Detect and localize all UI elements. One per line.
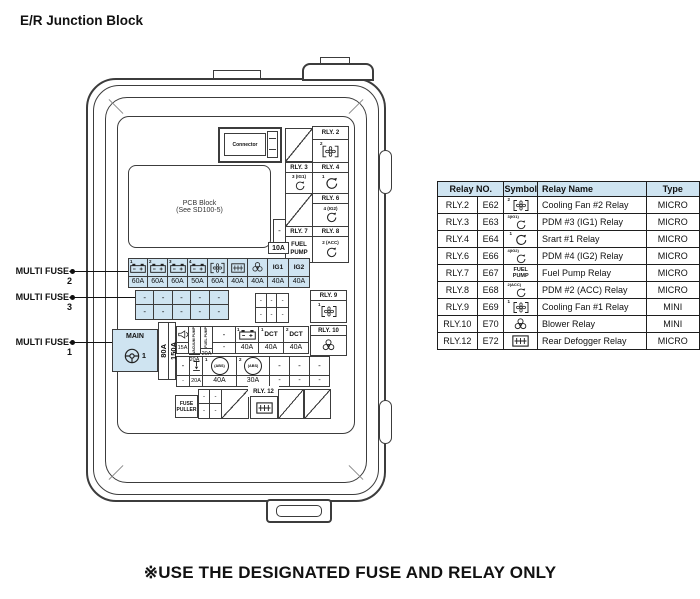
fuse-cell: - - <box>310 356 330 387</box>
relay-slot-blank <box>304 389 331 419</box>
pcb-label-line2: (See SD100-5) <box>176 207 223 214</box>
battery-icon <box>239 329 256 340</box>
small-fuse-row-1: 15A VACUUM PUMP 20A FUEL PUMP 20A - - 1 … <box>176 326 309 354</box>
tow-hitch-icon <box>192 360 201 372</box>
table-row: RLY.3E63 3(IG1) PDM #3 (IG1) RelayMICRO <box>438 214 700 231</box>
vacuum-pump-label: VACUUM PUMP <box>192 327 196 354</box>
leader-line <box>74 297 135 298</box>
fuse-cell: IG1 40A <box>268 258 289 288</box>
blower-icon <box>513 317 528 332</box>
connector-label: Connector <box>233 142 258 148</box>
case-side-bump <box>379 400 392 444</box>
table-header-row: Relay NO. Symbol Relay Name Type <box>438 182 700 197</box>
fuse-cell: 1 60A <box>128 258 148 288</box>
table-row: RLY.10E70 Blower RelayMINI <box>438 316 700 333</box>
case-top-latch <box>320 57 350 64</box>
battery-icon <box>190 263 206 273</box>
fuse-cell: 20A <box>190 356 203 387</box>
rly2-cell: 2 <box>312 139 349 163</box>
main-num: 1 <box>142 351 146 360</box>
fuse-cell: IG2 40A <box>289 258 310 288</box>
fuse-cell: 60A <box>208 258 228 288</box>
table-row: RLY.4E64 1 Srart #1 RelayMICRO <box>438 231 700 248</box>
fuel-pump-text: FUEL <box>291 242 307 249</box>
rly9-cell: 1 <box>310 300 347 323</box>
cooling-fan-icon <box>210 262 225 274</box>
main-label: MAIN <box>113 333 157 340</box>
spare-fuse-cell: - <box>273 219 286 243</box>
ig2-label: IG2 <box>289 259 309 276</box>
fuse-puller-box: FUSE PULLER <box>175 395 198 418</box>
coil-icon <box>324 176 338 190</box>
fuse-cell: 1 40A <box>236 326 259 354</box>
dct1-label: DCT <box>264 331 277 338</box>
main-fuse-block: MAIN 1 <box>112 329 158 372</box>
defogger-icon <box>256 402 273 414</box>
pcb-label-line1: PCB Block <box>183 200 216 207</box>
fuse-cell: 2DCT 40A <box>284 326 309 354</box>
multi-fuse-3-block: ----- ----- <box>135 290 229 320</box>
table-row: RLY.2E62 2 Cooling Fan #2 RelayMICRO <box>438 197 700 214</box>
relay-table: Relay NO. Symbol Relay Name Type RLY.2E6… <box>437 181 700 350</box>
footer-note: ※USE THE DESIGNATED FUSE AND RELAY ONLY <box>0 563 700 583</box>
rly10-cell <box>310 335 347 356</box>
coil-icon <box>325 246 337 258</box>
table-row: RLY.9E69 1 Cooling Fan #1 RelayMINI <box>438 299 700 316</box>
relay-slot-blank <box>285 128 313 162</box>
leader-line <box>74 342 112 343</box>
dct2-label: DCT <box>289 331 302 338</box>
fuse-cell: 40A <box>228 258 248 288</box>
multi-fuse-2-strip: 1 60A 2 60A 3 60A 4 50A 60A 40A 40A IG1 <box>128 258 310 288</box>
table-row: RLY.6E66 4(IG2) PDM #4 (IG2) RelayMICRO <box>438 248 700 265</box>
defogger-icon <box>512 335 529 347</box>
case-bottom-tab-inner <box>276 505 322 517</box>
spare-slot-block: --- --- <box>255 293 289 323</box>
connector-latch <box>267 131 278 158</box>
fuel-pump-text: PUMP <box>290 250 307 257</box>
case-top-plate <box>213 70 261 79</box>
abs-icon: (ABS) <box>211 357 229 375</box>
cooling-fan-icon <box>513 301 529 314</box>
horn-icon <box>178 330 188 339</box>
rly4-num: 1 <box>322 175 325 180</box>
relay-slot-blank <box>221 389 249 419</box>
cooling-fan-icon <box>322 145 339 158</box>
multi-fuse-3-label: MULTI FUSE-3 <box>14 292 72 312</box>
fuse-cell: 1DCT 40A <box>259 326 284 354</box>
header-relay-name: Relay Name <box>537 182 646 197</box>
case-side-bump <box>379 150 392 194</box>
small-fuse-row-2: - - 20A 1 (ABS) 40A 2 (ABS) 30A - - - - <box>176 356 330 387</box>
rly2-num: 2 <box>320 142 323 147</box>
case-top-bump <box>302 63 374 81</box>
multi-fuse-2-label: MULTI FUSE-2 <box>14 266 72 286</box>
fuse-cell: - - <box>270 356 290 387</box>
relay-slot-blank <box>278 389 304 419</box>
table-row: RLY.8E68 2(ACC) PDM #2 (ACC) RelayMICRO <box>438 282 700 299</box>
multi-fuse-1-label: MULTI FUSE-1 <box>14 337 72 357</box>
fuse-cell: VACUUM PUMP 20A <box>189 326 201 354</box>
blower-icon <box>321 338 336 353</box>
coil-icon <box>515 287 526 298</box>
rly8-cell: 2 (ACC) <box>312 236 349 263</box>
coil-icon <box>515 253 526 264</box>
leader-line <box>74 271 128 272</box>
fuse-cell: - - <box>213 326 236 354</box>
fuse-cell: FUEL PUMP 20A <box>201 326 213 354</box>
cooling-fan-icon <box>321 305 337 318</box>
main-amp-strip: 80A 150A <box>158 322 176 380</box>
rly12-cell <box>250 396 278 419</box>
pcb-block: PCB Block (See SD100-5) <box>128 165 271 248</box>
battery-icon <box>150 263 166 273</box>
coil-icon <box>294 180 305 191</box>
fuse-cell: 2 (ABS) 30A <box>237 356 270 387</box>
blower-icon <box>251 261 264 274</box>
spare-slot-block: -- -- <box>198 389 222 419</box>
fuse-cell: 4 50A <box>188 258 208 288</box>
fuse-cell: 3 60A <box>168 258 188 288</box>
fuse-cell: 15A <box>176 326 189 354</box>
header-relay-no: Relay NO. <box>438 182 504 197</box>
coil-icon <box>515 219 526 230</box>
table-row: RLY.12E72 Rear Defogger RelayMICRO <box>438 333 700 350</box>
cooling-fan-icon <box>513 199 529 212</box>
steering-wheel-icon <box>124 348 140 364</box>
rly3-cell: 3 (IG1) <box>285 172 313 194</box>
battery-icon <box>170 263 186 273</box>
table-row: RLY.7E67 FUELPUMP Fuel Pump RelayMICRO <box>438 265 700 282</box>
header-symbol: Symbol <box>504 182 538 197</box>
fuse-cell: - - <box>176 356 190 387</box>
main-amp-1: 80A <box>159 344 168 358</box>
defogger-icon <box>231 263 245 273</box>
coil-icon <box>325 211 337 223</box>
connector-latch-line <box>269 138 276 139</box>
abs-icon: (ABS) <box>244 357 262 375</box>
fuse-cell: 2 60A <box>148 258 168 288</box>
fuse-cell: 1 (ABS) 40A <box>203 356 237 387</box>
connector-label-box: Connector <box>224 133 266 156</box>
fuel-pump-symbol: FUELPUMP <box>513 267 529 279</box>
fuel-pump-label: FUEL PUMP <box>204 327 208 348</box>
ig1-label: IG1 <box>268 259 288 276</box>
rly9-num: 1 <box>318 303 321 308</box>
coil-icon <box>514 233 527 246</box>
relay-slot-blank <box>285 193 313 227</box>
rly2-label: RLY. 2 <box>312 126 349 140</box>
rly4-cell: 1 <box>312 172 349 194</box>
rly6-cell: 4 (IG2) <box>312 203 349 227</box>
fuse-cell: 40A <box>248 258 268 288</box>
spare-fuse-amp: 10A <box>268 242 289 254</box>
fuse-cell: - - <box>290 356 310 387</box>
header-type: Type <box>646 182 699 197</box>
screen: E/R Junction Block Connector PCB Block (… <box>0 0 700 599</box>
connector-latch-line <box>269 149 276 150</box>
page-title: E/R Junction Block <box>20 13 143 28</box>
